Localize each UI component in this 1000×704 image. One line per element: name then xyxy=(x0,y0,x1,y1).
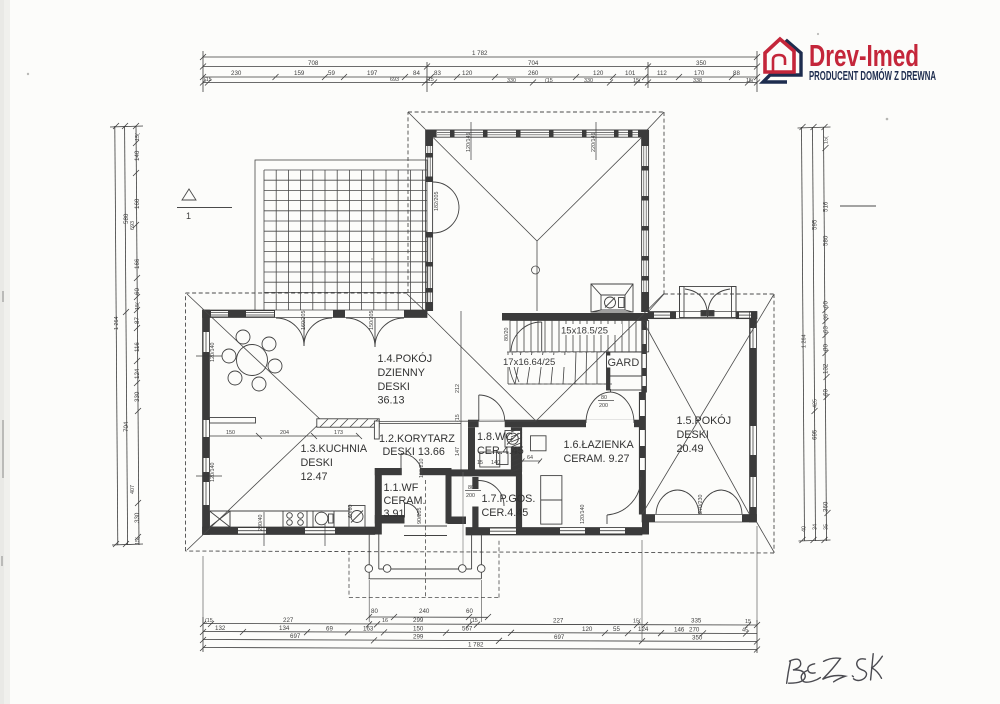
svg-text:17x16.64/25: 17x16.64/25 xyxy=(503,357,555,368)
svg-text:1.8.WC: 1.8.WC xyxy=(477,431,513,443)
svg-text:704: 704 xyxy=(123,421,130,432)
svg-text:1.5.POKÓJ: 1.5.POKÓJ xyxy=(677,414,732,427)
svg-text:1.3.KUCHNIA: 1.3.KUCHNIA xyxy=(301,443,368,455)
svg-text:63: 63 xyxy=(823,326,830,333)
svg-text:697: 697 xyxy=(290,633,301,640)
svg-text:1.1.WF: 1.1.WF xyxy=(384,482,419,494)
svg-text:GARD: GARD xyxy=(608,357,640,369)
svg-text:197: 197 xyxy=(367,70,378,77)
svg-text:36.13: 36.13 xyxy=(378,395,405,407)
svg-text:146: 146 xyxy=(674,626,685,633)
svg-text:299: 299 xyxy=(413,634,424,641)
svg-text:35: 35 xyxy=(824,524,830,530)
svg-text:80: 80 xyxy=(601,395,607,401)
svg-text:160: 160 xyxy=(134,198,141,209)
svg-text:150/210: 150/210 xyxy=(419,459,425,479)
svg-text:60/60: 60/60 xyxy=(348,505,354,519)
svg-text:330: 330 xyxy=(584,78,593,84)
svg-text:1 782: 1 782 xyxy=(472,50,488,57)
svg-text:(15: (15 xyxy=(204,77,212,83)
svg-text:595: 595 xyxy=(812,219,819,230)
svg-text:15(: 15( xyxy=(746,78,754,84)
svg-text:90/205: 90/205 xyxy=(417,508,423,525)
svg-text:1.2.KORYTARZ: 1.2.KORYTARZ xyxy=(379,433,455,445)
svg-text:15(: 15( xyxy=(135,133,141,141)
svg-text:34: 34 xyxy=(813,524,819,530)
svg-text:60: 60 xyxy=(466,608,473,615)
svg-text:88: 88 xyxy=(733,70,740,77)
svg-text:270/230: 270/230 xyxy=(698,495,704,515)
svg-text:80: 80 xyxy=(371,608,378,615)
svg-text:DESKI: DESKI xyxy=(301,457,333,469)
svg-text:516: 516 xyxy=(823,201,830,212)
svg-text:PRODUCENT DOMÓW Z DREWNA: PRODUCENT DOMÓW Z DREWNA xyxy=(809,68,936,83)
svg-text:693: 693 xyxy=(390,77,399,83)
svg-text:80/20: 80/20 xyxy=(504,328,510,342)
svg-text:240: 240 xyxy=(419,608,430,615)
svg-text:338: 338 xyxy=(693,78,702,84)
svg-text:1.4.POKÓJ: 1.4.POKÓJ xyxy=(378,352,433,365)
svg-text:150: 150 xyxy=(226,430,235,436)
svg-text:CERAM.: CERAM. xyxy=(384,495,426,507)
svg-text:124: 124 xyxy=(134,368,141,379)
svg-text:260: 260 xyxy=(528,70,539,77)
svg-text:120/140: 120/140 xyxy=(580,505,586,525)
svg-text:407: 407 xyxy=(130,485,136,494)
svg-text:CER.4.45: CER.4.45 xyxy=(477,445,524,457)
svg-text:134: 134 xyxy=(279,625,290,632)
svg-text:695: 695 xyxy=(812,429,819,440)
svg-text:1 264: 1 264 xyxy=(114,317,120,331)
svg-text:170: 170 xyxy=(694,70,705,77)
svg-text:CER.4.45: CER.4.45 xyxy=(482,507,529,519)
svg-text:DZIENNY: DZIENNY xyxy=(378,367,425,379)
svg-text:335: 335 xyxy=(691,618,702,625)
svg-text:120/140: 120/140 xyxy=(210,463,216,483)
svg-text:270: 270 xyxy=(689,626,700,633)
svg-text:140: 140 xyxy=(491,460,500,466)
svg-text:704: 704 xyxy=(528,60,539,67)
svg-text:580: 580 xyxy=(123,213,130,224)
svg-text:3.91: 3.91 xyxy=(384,508,405,520)
svg-text:1.7.P.GOS.: 1.7.P.GOS. xyxy=(482,493,536,505)
svg-text:425: 425 xyxy=(813,399,819,408)
svg-text:124: 124 xyxy=(638,626,649,633)
svg-text:200: 200 xyxy=(599,403,608,409)
svg-text:16: 16 xyxy=(382,618,388,624)
svg-text:116: 116 xyxy=(134,342,141,352)
svg-text:350: 350 xyxy=(696,60,707,67)
svg-text:(15: (15 xyxy=(426,77,434,83)
svg-text:101: 101 xyxy=(625,70,636,77)
svg-text:60: 60 xyxy=(823,301,830,308)
svg-text:1: 1 xyxy=(186,211,191,221)
svg-text:(15: (15 xyxy=(455,414,461,422)
svg-text:227: 227 xyxy=(283,617,294,624)
svg-text:1.6.ŁAZIENKA: 1.6.ŁAZIENKA xyxy=(564,439,635,451)
svg-text:59: 59 xyxy=(328,70,335,77)
svg-text:15: 15 xyxy=(745,619,751,625)
svg-text:80: 80 xyxy=(823,344,830,351)
svg-text:15(: 15( xyxy=(824,136,830,144)
svg-text:15(: 15( xyxy=(135,537,141,545)
svg-text:140: 140 xyxy=(134,150,141,161)
svg-text:132: 132 xyxy=(215,625,226,632)
svg-text:15: 15 xyxy=(477,460,483,466)
svg-text:120/140: 120/140 xyxy=(210,343,216,363)
svg-text:166: 166 xyxy=(134,258,141,269)
svg-text:DESKI: DESKI xyxy=(677,429,709,441)
svg-text:132: 132 xyxy=(823,363,830,374)
svg-text:60: 60 xyxy=(134,288,141,295)
svg-text:69: 69 xyxy=(326,625,333,632)
svg-text:330: 330 xyxy=(134,512,141,523)
svg-text:CERAM. 9.27: CERAM. 9.27 xyxy=(564,453,630,465)
svg-text:87: 87 xyxy=(134,317,141,324)
svg-text:230/40: 230/40 xyxy=(258,515,264,532)
svg-text:1 782: 1 782 xyxy=(468,641,484,648)
svg-text:230: 230 xyxy=(231,70,242,77)
svg-text:(15: (15 xyxy=(545,78,553,84)
svg-text:DESKI 13.66: DESKI 13.66 xyxy=(383,446,445,458)
svg-text:212: 212 xyxy=(455,384,461,393)
svg-text:55: 55 xyxy=(613,626,620,633)
svg-text:1 264: 1 264 xyxy=(802,335,808,349)
svg-text:35: 35 xyxy=(824,314,830,320)
svg-text:15(: 15( xyxy=(633,78,641,84)
svg-text:330: 330 xyxy=(134,391,141,402)
svg-text:173: 173 xyxy=(334,430,343,436)
svg-text:120: 120 xyxy=(593,70,604,77)
svg-text:150/205: 150/205 xyxy=(369,311,375,331)
svg-text:80: 80 xyxy=(468,485,474,491)
svg-text:40: 40 xyxy=(802,526,808,532)
svg-text:163: 163 xyxy=(363,625,374,632)
svg-text:708: 708 xyxy=(308,60,319,67)
svg-text:15(: 15( xyxy=(633,619,641,625)
svg-text:580: 580 xyxy=(823,235,830,246)
svg-text:120: 120 xyxy=(582,626,593,633)
svg-text:159: 159 xyxy=(294,70,305,77)
svg-text:150: 150 xyxy=(413,626,424,633)
svg-text:160/205: 160/205 xyxy=(301,311,307,331)
svg-text:182/205: 182/205 xyxy=(434,192,440,212)
svg-text:20.49: 20.49 xyxy=(677,443,704,455)
svg-text:697: 697 xyxy=(554,634,565,641)
svg-text:330: 330 xyxy=(507,78,516,84)
svg-text:227: 227 xyxy=(553,617,564,624)
svg-text:(15: (15 xyxy=(470,618,478,624)
svg-text:64: 64 xyxy=(527,455,533,461)
svg-text:120: 120 xyxy=(462,70,473,77)
svg-text:15x18.5/25: 15x18.5/25 xyxy=(561,326,608,337)
svg-text:84: 84 xyxy=(413,70,420,77)
svg-text:12.47: 12.47 xyxy=(301,471,328,483)
svg-text:299: 299 xyxy=(413,617,424,624)
svg-text:360: 360 xyxy=(823,501,830,512)
svg-text:200: 200 xyxy=(466,493,475,499)
svg-text:83: 83 xyxy=(434,70,441,77)
svg-text:147: 147 xyxy=(455,447,461,456)
svg-text:112: 112 xyxy=(657,70,667,77)
svg-text:DESKI: DESKI xyxy=(378,381,410,393)
svg-text:204: 204 xyxy=(280,430,289,436)
